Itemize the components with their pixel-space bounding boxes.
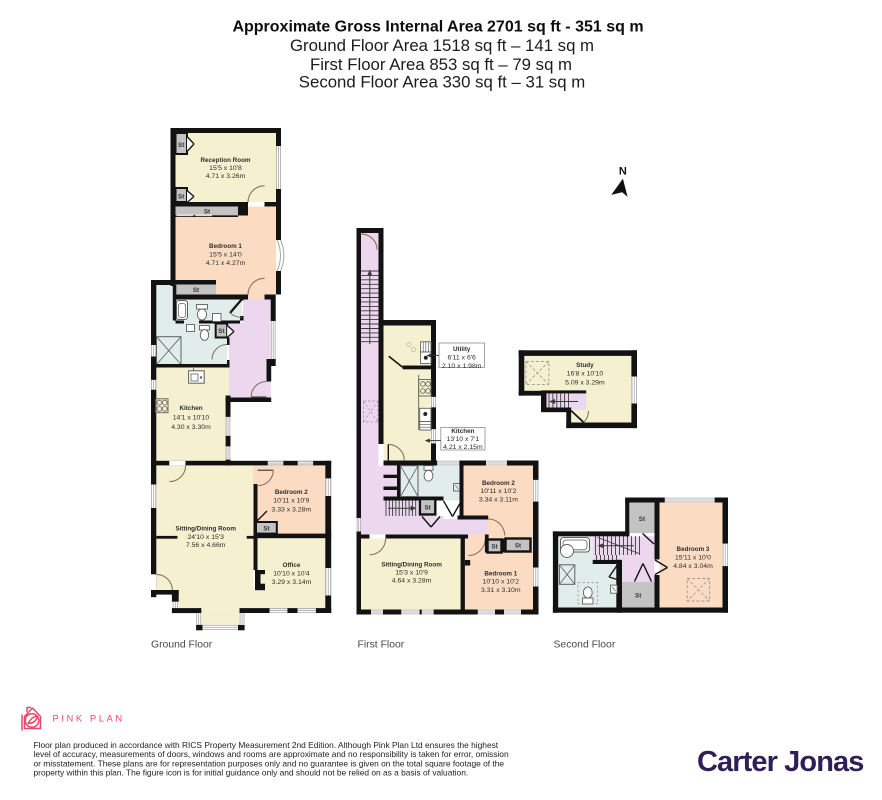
svg-text:Kitchen: Kitchen (179, 405, 202, 412)
svg-text:St: St (515, 543, 522, 550)
svg-text:Carter Jonas: Carter Jonas (697, 746, 864, 778)
svg-text:Bedroom 3: Bedroom 3 (677, 546, 710, 553)
svg-text:15'5 x 10'8: 15'5 x 10'8 (209, 165, 242, 172)
svg-text:4.71 x 4.27m: 4.71 x 4.27m (206, 260, 246, 267)
svg-text:St: St (635, 593, 642, 600)
svg-text:2.10 x 1.98m: 2.10 x 1.98m (442, 363, 482, 370)
svg-text:3.34 x 3.11m: 3.34 x 3.11m (479, 496, 518, 503)
svg-text:7.56 x 4.66m: 7.56 x 4.66m (186, 542, 226, 549)
svg-text:Approximate Gross Internal Are: Approximate Gross Internal Area 2701 sq … (232, 19, 643, 36)
svg-text:Bedroom 2: Bedroom 2 (275, 489, 308, 496)
svg-text:10'10 x 10'4: 10'10 x 10'4 (273, 570, 310, 577)
svg-text:St: St (218, 328, 225, 335)
svg-text:First Floor: First Floor (358, 639, 405, 650)
svg-text:10'10 x 10'2: 10'10 x 10'2 (483, 579, 520, 586)
svg-text:Ground Floor: Ground Floor (151, 639, 213, 650)
svg-text:3.29 x 3.14m: 3.29 x 3.14m (272, 579, 312, 586)
svg-text:Kitchen: Kitchen (451, 428, 474, 435)
svg-text:4.84 x 3.04m: 4.84 x 3.04m (673, 563, 713, 570)
svg-text:Study: Study (576, 362, 594, 369)
svg-text:N: N (619, 166, 627, 178)
svg-text:4.21 x 2.15m: 4.21 x 2.15m (443, 444, 483, 451)
svg-text:St: St (178, 194, 185, 201)
svg-text:16'8 x 10'10: 16'8 x 10'10 (567, 371, 604, 378)
svg-text:6'11 x 6'6: 6'11 x 6'6 (448, 354, 477, 361)
svg-text:4.71 x 3.26m: 4.71 x 3.26m (206, 173, 246, 180)
svg-text:St: St (491, 544, 498, 551)
svg-text:St: St (639, 516, 646, 523)
svg-text:First Floor Area 853 sq ft – 7: First Floor Area 853 sq ft – 79 sq m (310, 55, 572, 74)
svg-text:Second Floor Area 330 sq ft –: Second Floor Area 330 sq ft – 31 sq m (299, 73, 585, 92)
svg-text:Sitting/Dining Room: Sitting/Dining Room (175, 526, 236, 533)
svg-text:3.31 x 3.10m: 3.31 x 3.10m (481, 587, 521, 594)
svg-text:St: St (204, 209, 211, 216)
svg-text:10'11 x 10'9: 10'11 x 10'9 (273, 498, 309, 505)
svg-text:St: St (424, 505, 431, 512)
svg-text:property within this plan. The: property within this plan. The figure ic… (34, 768, 469, 778)
svg-text:15'3 x 10'9: 15'3 x 10'9 (395, 570, 428, 577)
svg-text:Utility: Utility (453, 346, 471, 353)
svg-text:4.64 x 3.28m: 4.64 x 3.28m (392, 578, 432, 585)
svg-text:24'10 x 15'3: 24'10 x 15'3 (187, 534, 224, 541)
svg-text:Bedroom 1: Bedroom 1 (484, 571, 517, 578)
svg-text:Sitting/Dining Room: Sitting/Dining Room (381, 561, 442, 568)
svg-text:Bedroom 1: Bedroom 1 (209, 243, 242, 250)
svg-text:Reception Room: Reception Room (200, 157, 250, 164)
svg-text:5.09 x 3.29m: 5.09 x 3.29m (565, 379, 605, 386)
svg-text:15'11 x 10'0: 15'11 x 10'0 (675, 555, 711, 562)
svg-text:4.30 x 3.30m: 4.30 x 3.30m (171, 424, 211, 431)
svg-text:14'1 x 10'10: 14'1 x 10'10 (173, 415, 210, 422)
svg-text:PINK PLAN: PINK PLAN (53, 714, 125, 724)
svg-text:St: St (263, 526, 270, 533)
svg-text:Ground Floor Area 1518 sq ft –: Ground Floor Area 1518 sq ft – 141 sq m (290, 36, 594, 55)
svg-text:3.33 x 3.28m: 3.33 x 3.28m (272, 506, 312, 513)
svg-text:St: St (178, 142, 185, 149)
svg-text:Office: Office (283, 562, 301, 569)
svg-text:15'5 x 14'0: 15'5 x 14'0 (209, 251, 242, 258)
svg-text:10'11 x 10'2: 10'11 x 10'2 (480, 488, 516, 495)
svg-text:St: St (193, 287, 200, 294)
svg-text:Bedroom 2: Bedroom 2 (482, 480, 515, 487)
svg-text:13'10 x 7'1: 13'10 x 7'1 (447, 436, 480, 443)
svg-text:Second Floor: Second Floor (554, 639, 616, 650)
